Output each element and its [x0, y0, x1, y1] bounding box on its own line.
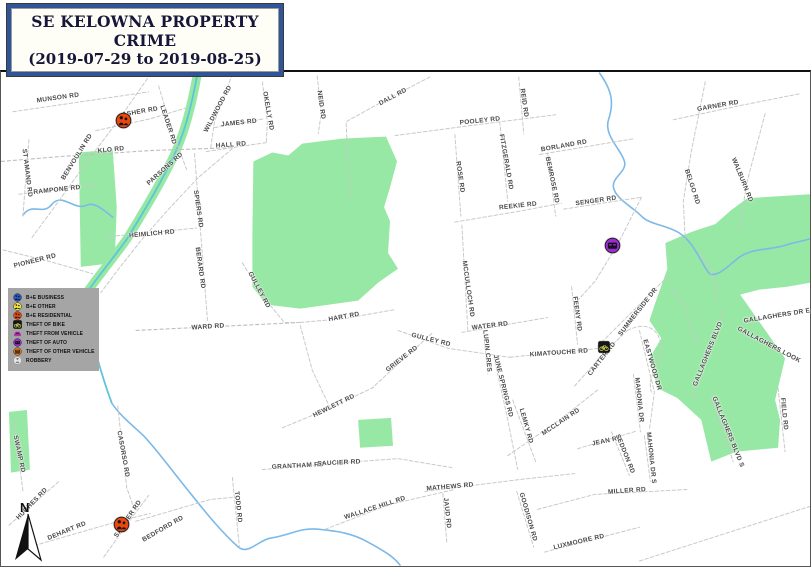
- legend-symbol-icon: [13, 338, 22, 347]
- legend-item-be-business: B+E BUSINESS: [13, 293, 95, 302]
- legend-symbol-icon: [13, 347, 22, 356]
- legend-item-theft-of-bike: THEFT OF BIKE: [13, 320, 95, 329]
- legend-item-label: THEFT OF AUTO: [26, 340, 67, 346]
- legend-item-label: B+E RESIDENTIAL: [26, 313, 72, 319]
- legend-item-label: B+E BUSINESS: [26, 295, 64, 301]
- page: SE KELOWNA PROPERTY CRIME (2019-07-29 to…: [0, 0, 811, 567]
- legend-item-theft-of-other-vehicle: THEFT OF OTHER VEHICLE: [13, 347, 95, 356]
- legend-item-theft-of-auto: THEFT OF AUTO: [13, 338, 95, 347]
- north-arrow: N: [9, 500, 49, 566]
- legend-item-label: ROBBERY: [26, 358, 52, 364]
- legend-symbol-icon: [13, 320, 22, 329]
- marker-be-residential[interactable]: [115, 112, 132, 129]
- north-label: N: [20, 500, 29, 515]
- legend-item-label: THEFT OF BIKE: [26, 322, 65, 328]
- legend-symbol-icon: [13, 293, 22, 302]
- legend-item-label: THEFT OF OTHER VEHICLE: [26, 349, 95, 355]
- legend-item-be-residential: B+E RESIDENTIAL: [13, 311, 95, 320]
- map-date-range: (2019-07-29 to 2019-08-25): [28, 50, 261, 68]
- map-graphics: [1, 72, 810, 566]
- legend-symbol-icon: [13, 302, 22, 311]
- legend: B+E BUSINESS B+E OTHER B+E RESIDENTIAL T…: [8, 288, 99, 371]
- legend-symbol-icon: [13, 356, 22, 365]
- legend-items: B+E BUSINESS B+E OTHER B+E RESIDENTIAL T…: [13, 293, 95, 365]
- legend-symbol-icon: [13, 311, 22, 320]
- legend-item-be-other: B+E OTHER: [13, 302, 95, 311]
- legend-symbol-icon: [13, 329, 22, 338]
- marker-theft-of-auto[interactable]: [604, 237, 621, 254]
- map-title-box: SE KELOWNA PROPERTY CRIME (2019-07-29 to…: [7, 4, 283, 76]
- map-canvas: MUNSON RDASHER RDLEADER RDKLO RDBENVOULI…: [0, 70, 811, 567]
- legend-item-theft-from-vehicle: THEFT FROM VEHICLE: [13, 329, 95, 338]
- marker-theft-of-bike[interactable]: [598, 341, 610, 353]
- map-title: SE KELOWNA PROPERTY CRIME: [17, 12, 273, 50]
- legend-item-label: B+E OTHER: [26, 304, 56, 310]
- legend-item-label: THEFT FROM VEHICLE: [26, 331, 83, 337]
- marker-be-residential[interactable]: [113, 516, 130, 533]
- legend-item-robbery: ROBBERY: [13, 356, 95, 365]
